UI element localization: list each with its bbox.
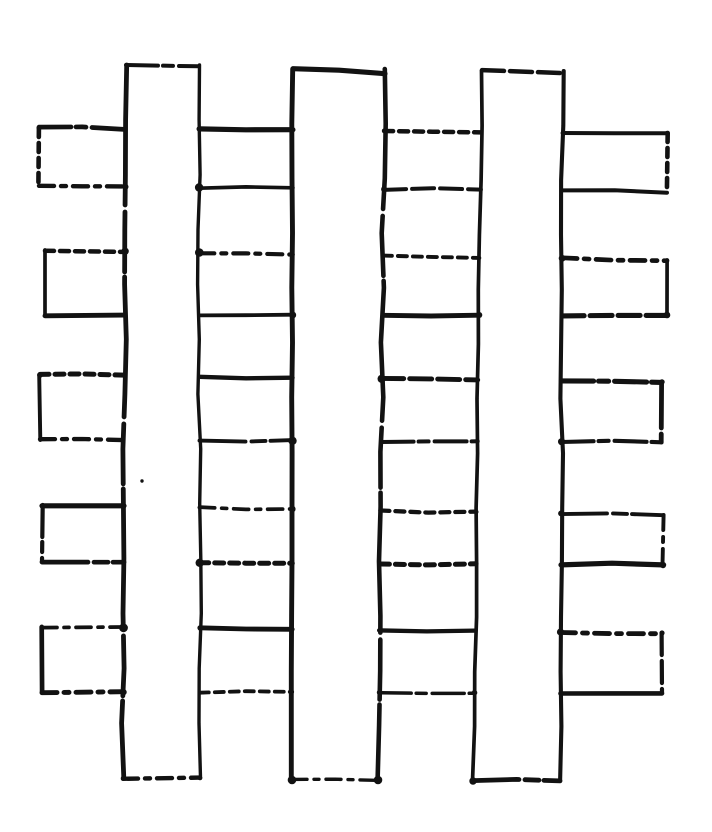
ink-stroke xyxy=(382,378,478,380)
ink-stroke xyxy=(122,65,127,778)
ink-stroke xyxy=(40,374,125,375)
ink-stroke xyxy=(45,315,125,316)
scanned-figure-page xyxy=(0,0,712,832)
ink-stroke xyxy=(292,779,378,780)
ink-stroke xyxy=(561,563,663,565)
ink-stroke xyxy=(200,628,292,630)
ink-stroke xyxy=(562,315,667,316)
vertical-strip-v3 xyxy=(469,70,563,785)
ink-blob xyxy=(374,776,383,785)
horizontal-strip-h4 xyxy=(42,505,666,568)
ink-stroke xyxy=(562,441,662,443)
ink-stroke xyxy=(383,256,479,258)
ink-stroke xyxy=(482,70,563,73)
ink-stroke xyxy=(200,440,293,442)
ink-stroke xyxy=(473,779,560,781)
ink-stroke xyxy=(38,128,39,186)
ink-stroke xyxy=(39,375,40,440)
ink-stroke xyxy=(379,693,474,694)
horizontal-strip-h1 xyxy=(37,126,670,193)
ink-stroke xyxy=(561,633,663,634)
ink-stroke xyxy=(473,71,483,781)
ink-stroke xyxy=(562,258,667,261)
ink-stroke xyxy=(200,563,293,564)
ink-stroke xyxy=(379,630,474,631)
ink-blob xyxy=(469,777,476,784)
ink-stroke xyxy=(667,133,668,192)
ink-stroke xyxy=(126,65,199,66)
ink-stroke xyxy=(562,381,662,383)
ink-stroke xyxy=(123,778,200,779)
ink-stroke xyxy=(39,127,126,130)
ink-blob xyxy=(288,776,297,785)
ink-blob xyxy=(198,776,203,781)
ink-stroke xyxy=(384,188,481,190)
ink-stroke xyxy=(384,131,481,132)
ink-stroke xyxy=(42,692,124,693)
ink-stroke xyxy=(561,513,663,515)
ink-stroke xyxy=(198,65,202,778)
ink-stroke xyxy=(382,441,478,442)
ink-stroke xyxy=(293,69,385,74)
ink-stroke xyxy=(42,505,43,562)
ink-stroke xyxy=(199,315,292,316)
vertical-strip-v2 xyxy=(288,69,386,785)
ink-stroke xyxy=(42,627,124,628)
ink-stroke xyxy=(560,71,564,781)
ink-stroke xyxy=(200,377,293,379)
ink-stroke xyxy=(378,69,386,780)
ink-stroke xyxy=(45,251,125,252)
ink-stroke xyxy=(383,315,479,316)
ink-speck xyxy=(140,479,143,482)
weave-lattice-sketch xyxy=(0,0,712,832)
ink-stroke xyxy=(39,186,126,187)
ink-stroke xyxy=(563,190,667,192)
horizontal-strip-h3 xyxy=(37,372,665,445)
ink-stroke xyxy=(200,691,292,693)
ink-stroke xyxy=(291,69,292,780)
horizontal-strip-h2 xyxy=(45,248,670,319)
ink-stroke xyxy=(199,187,293,188)
ink-stroke xyxy=(40,439,125,440)
ink-stroke xyxy=(380,564,476,565)
ink-stroke xyxy=(199,129,293,130)
ink-stroke xyxy=(200,507,293,509)
ink-stroke xyxy=(199,253,292,254)
ink-blob xyxy=(121,776,125,780)
ink-stroke xyxy=(663,515,664,565)
vertical-strip-v1 xyxy=(121,65,203,780)
horizontal-strip-h5 xyxy=(40,623,665,695)
ink-stroke xyxy=(380,511,476,513)
